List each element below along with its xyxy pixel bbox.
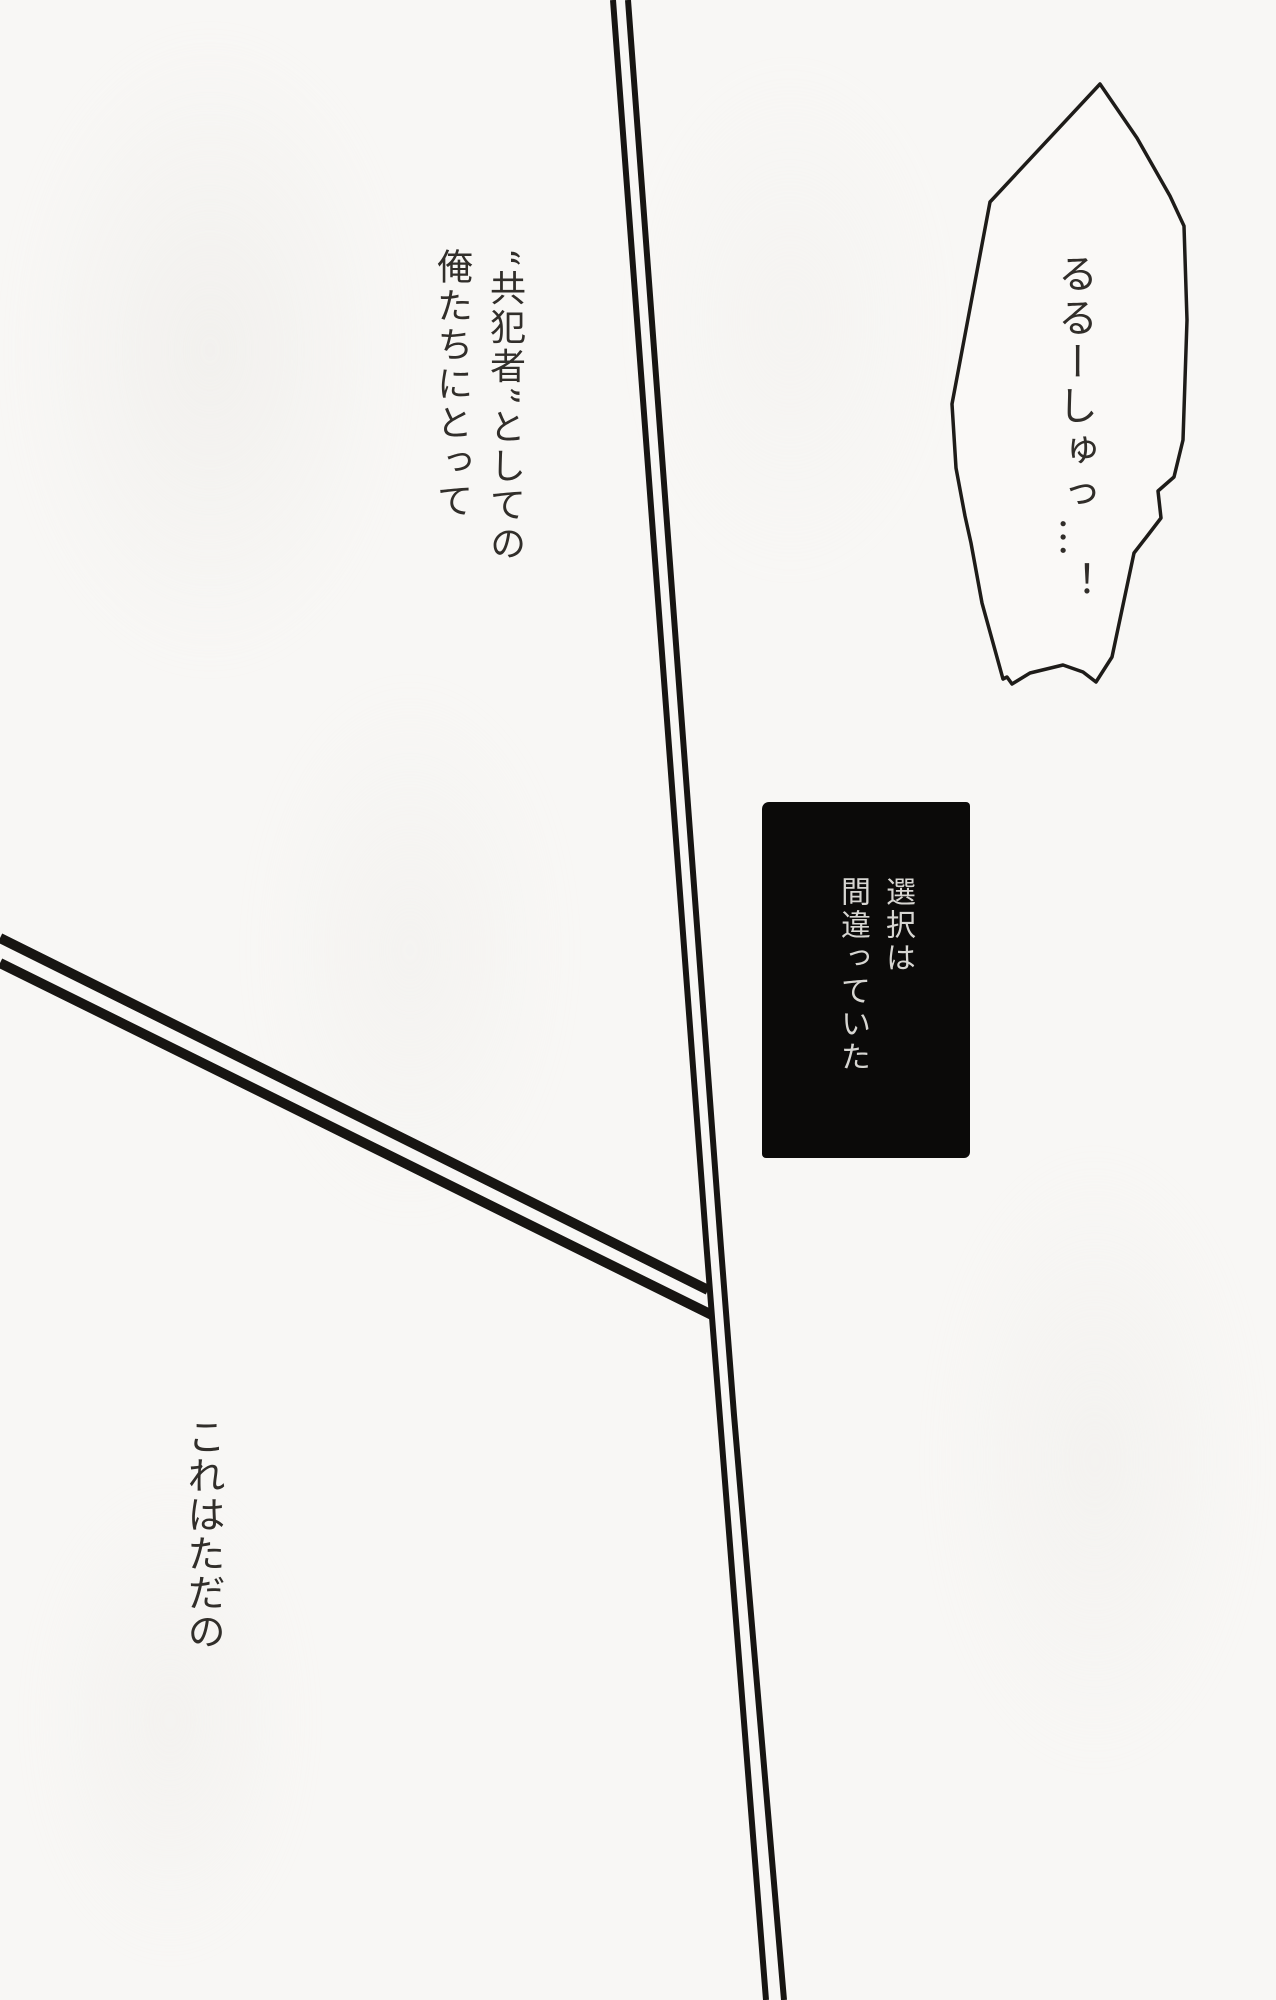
catchphrase-line-1: “共犯者”としての [477,248,530,564]
scan-ghosting [630,60,950,580]
vertical-panel-border-right [628,0,784,2000]
manga-page: るるーしゅっ…！ “共犯者”としての 俺たちにとって 選択は 間違っていた これ… [0,0,1276,2000]
vertical-panel-border-left [613,0,766,2000]
catchphrase-line-2: 俺たちにとって [424,248,477,564]
diagonal-panel-border-lower [0,963,712,1315]
scan-ghosting [250,680,570,1220]
catchphrase-text: “共犯者”としての 俺たちにとって [424,248,530,564]
caption-box: 選択は 間違っていた [762,802,970,1158]
caption-line-2: 間違っていた [830,876,875,1074]
diagonal-panel-border-upper [0,938,708,1290]
speech-bubble-text: るるーしゅっ…！ [1052,253,1096,605]
bottom-narration-text: これはただの [189,1417,231,1651]
caption-line-1: 選択は [875,876,920,1074]
scan-ghosting [930,1150,1260,1770]
scan-ghosting [30,1480,310,1960]
scan-ghosting [10,30,410,670]
caption-box-text: 選択は 間違っていた [830,876,920,1074]
